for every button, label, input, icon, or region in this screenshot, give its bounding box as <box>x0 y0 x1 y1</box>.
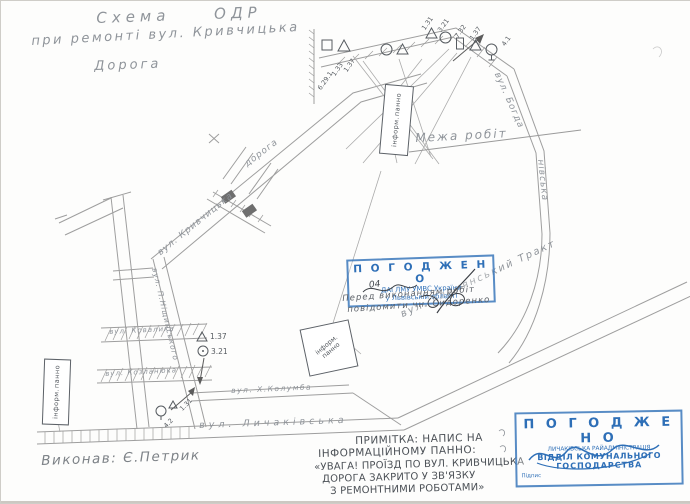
signature-scribbles <box>1 1 690 503</box>
scanned-traffic-scheme: Схема ОДР при ремонті вул. Кривчицька До… <box>0 0 690 504</box>
